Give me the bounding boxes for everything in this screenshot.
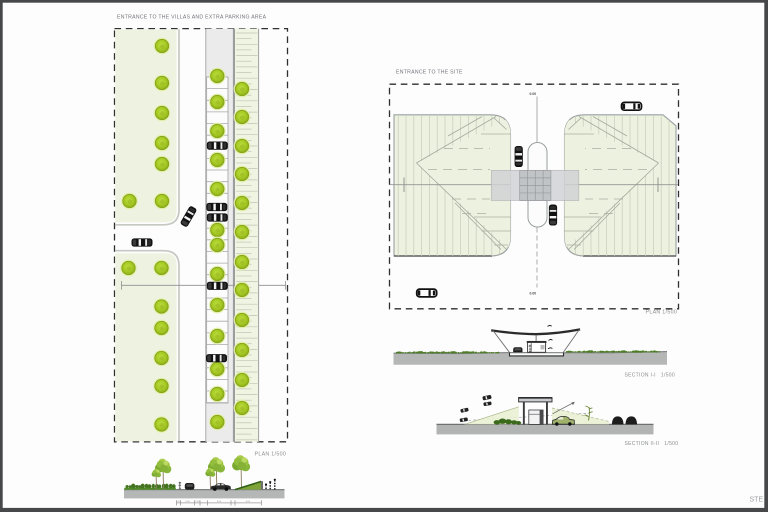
svg-text:PLAN 1/500: PLAN 1/500 — [646, 310, 678, 316]
svg-text:ENTRANCE TO THE SITE: ENTRANCE TO THE SITE — [396, 70, 463, 76]
svg-text:0.00: 0.00 — [530, 92, 537, 96]
svg-text:STE: STE — [750, 497, 764, 504]
svg-text:SECTION II-II 1/500: SECTION II-II 1/500 — [625, 441, 679, 447]
svg-text:SECTION I-I 1/500: SECTION I-I 1/500 — [625, 373, 675, 379]
svg-text:ENTRANCE TO THE VILLAS AND EXT: ENTRANCE TO THE VILLAS AND EXTRA PARKING… — [117, 14, 267, 20]
svg-text:0.00: 0.00 — [530, 292, 537, 296]
svg-text:PLAN 1/500: PLAN 1/500 — [255, 452, 287, 458]
